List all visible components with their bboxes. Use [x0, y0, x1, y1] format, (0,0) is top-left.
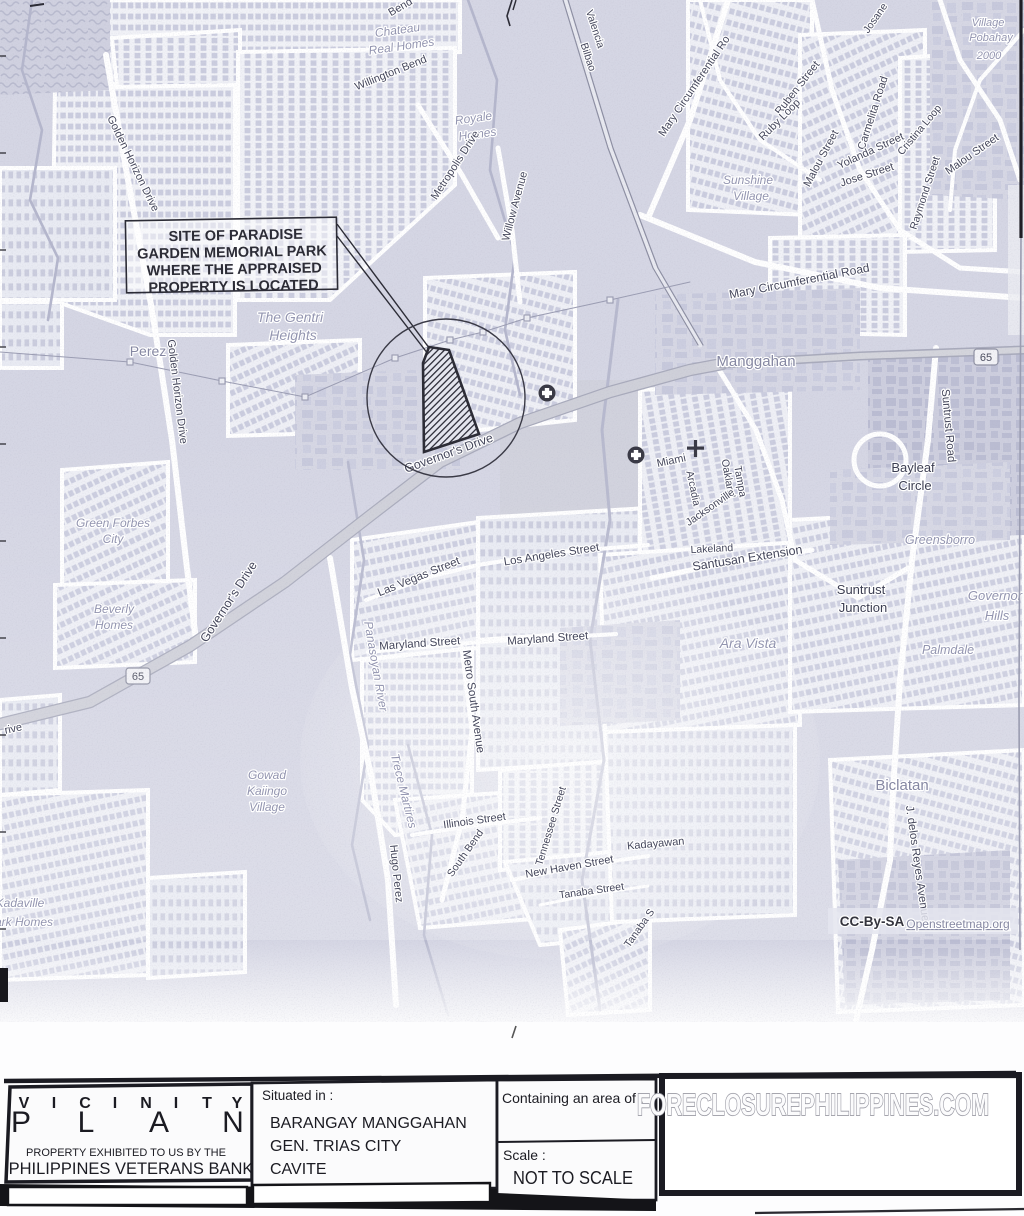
- svg-text:A: A: [149, 1106, 169, 1139]
- svg-text:N: N: [222, 1106, 244, 1139]
- svg-text:L: L: [78, 1106, 95, 1139]
- svg-text:CAVITE: CAVITE: [270, 1161, 327, 1178]
- svg-text:PROPERTY EXHIBITED TO US BY TH: PROPERTY EXHIBITED TO US BY THE: [26, 1147, 226, 1159]
- svg-text:Pobahay: Pobahay: [969, 32, 1014, 44]
- svg-text:CC-By-SA: CC-By-SA: [840, 914, 905, 929]
- svg-text:GARDEN MEMORIAL PARK: GARDEN MEMORIAL PARK: [137, 243, 327, 262]
- svg-text:Manggahan: Manggahan: [716, 353, 795, 370]
- svg-text:Governor: Governor: [968, 588, 1023, 603]
- svg-text:Kadaville: Kadaville: [0, 896, 45, 910]
- svg-text:P: P: [11, 1106, 31, 1139]
- svg-text:GEN. TRIAS CITY: GEN. TRIAS CITY: [270, 1138, 402, 1155]
- svg-text:ark Homes: ark Homes: [0, 915, 53, 929]
- svg-text:Situated in :: Situated in :: [262, 1088, 333, 1103]
- svg-text:FORECLOSUREPHILIPPINES.COM: FORECLOSUREPHILIPPINES.COM: [637, 1087, 989, 1122]
- svg-text:Homes: Homes: [95, 618, 133, 632]
- svg-text:Heights: Heights: [269, 327, 316, 343]
- svg-text:Beverly: Beverly: [94, 602, 135, 616]
- svg-text:Sunshine: Sunshine: [723, 173, 773, 187]
- svg-text:Village: Village: [972, 17, 1005, 29]
- svg-text:Junction: Junction: [839, 600, 887, 615]
- svg-text:2000: 2000: [976, 50, 1002, 62]
- svg-text:Suntrust: Suntrust: [837, 582, 886, 597]
- svg-text:I: I: [113, 1095, 117, 1112]
- svg-text:Biclatan: Biclatan: [875, 777, 928, 794]
- svg-text:The Gentri: The Gentri: [257, 309, 324, 325]
- svg-text:Kaiingo: Kaiingo: [247, 784, 287, 798]
- svg-text:Ara Vista: Ara Vista: [719, 635, 777, 651]
- svg-text:Village: Village: [733, 189, 769, 203]
- svg-text:PHILIPPINES VETERANS BANK: PHILIPPINES VETERANS BANK: [9, 1160, 254, 1178]
- svg-text:Hills: Hills: [985, 608, 1010, 623]
- svg-text:WHERE THE APPRAISED: WHERE THE APPRAISED: [147, 260, 322, 279]
- svg-text:SITE OF PARADISE: SITE OF PARADISE: [168, 227, 303, 245]
- svg-text:Village: Village: [249, 800, 285, 814]
- svg-text:Bayleaf: Bayleaf: [891, 460, 935, 475]
- svg-text:NOT TO SCALE: NOT TO SCALE: [513, 1168, 633, 1188]
- svg-text:Green Forbes: Green Forbes: [76, 516, 150, 530]
- svg-text:Containing an area of :: Containing an area of :: [502, 1090, 644, 1106]
- svg-text:Palmdale: Palmdale: [922, 643, 974, 657]
- svg-text:PROPERTY IS LOCATED: PROPERTY IS LOCATED: [148, 277, 319, 296]
- svg-text:Perez: Perez: [130, 343, 167, 359]
- svg-text:T: T: [202, 1095, 212, 1112]
- svg-text:Circle: Circle: [898, 478, 931, 493]
- svg-text:Gowad: Gowad: [248, 768, 286, 782]
- svg-text:Greensborro: Greensborro: [905, 533, 975, 547]
- svg-text:BARANGAY MANGGAHAN: BARANGAY MANGGAHAN: [270, 1115, 467, 1132]
- svg-text:I: I: [174, 1095, 178, 1112]
- svg-text:City: City: [103, 532, 125, 546]
- svg-text:Openstreetmap.org: Openstreetmap.org: [906, 917, 1009, 931]
- svg-text:I: I: [52, 1095, 56, 1112]
- svg-text:Scale :: Scale :: [503, 1147, 546, 1163]
